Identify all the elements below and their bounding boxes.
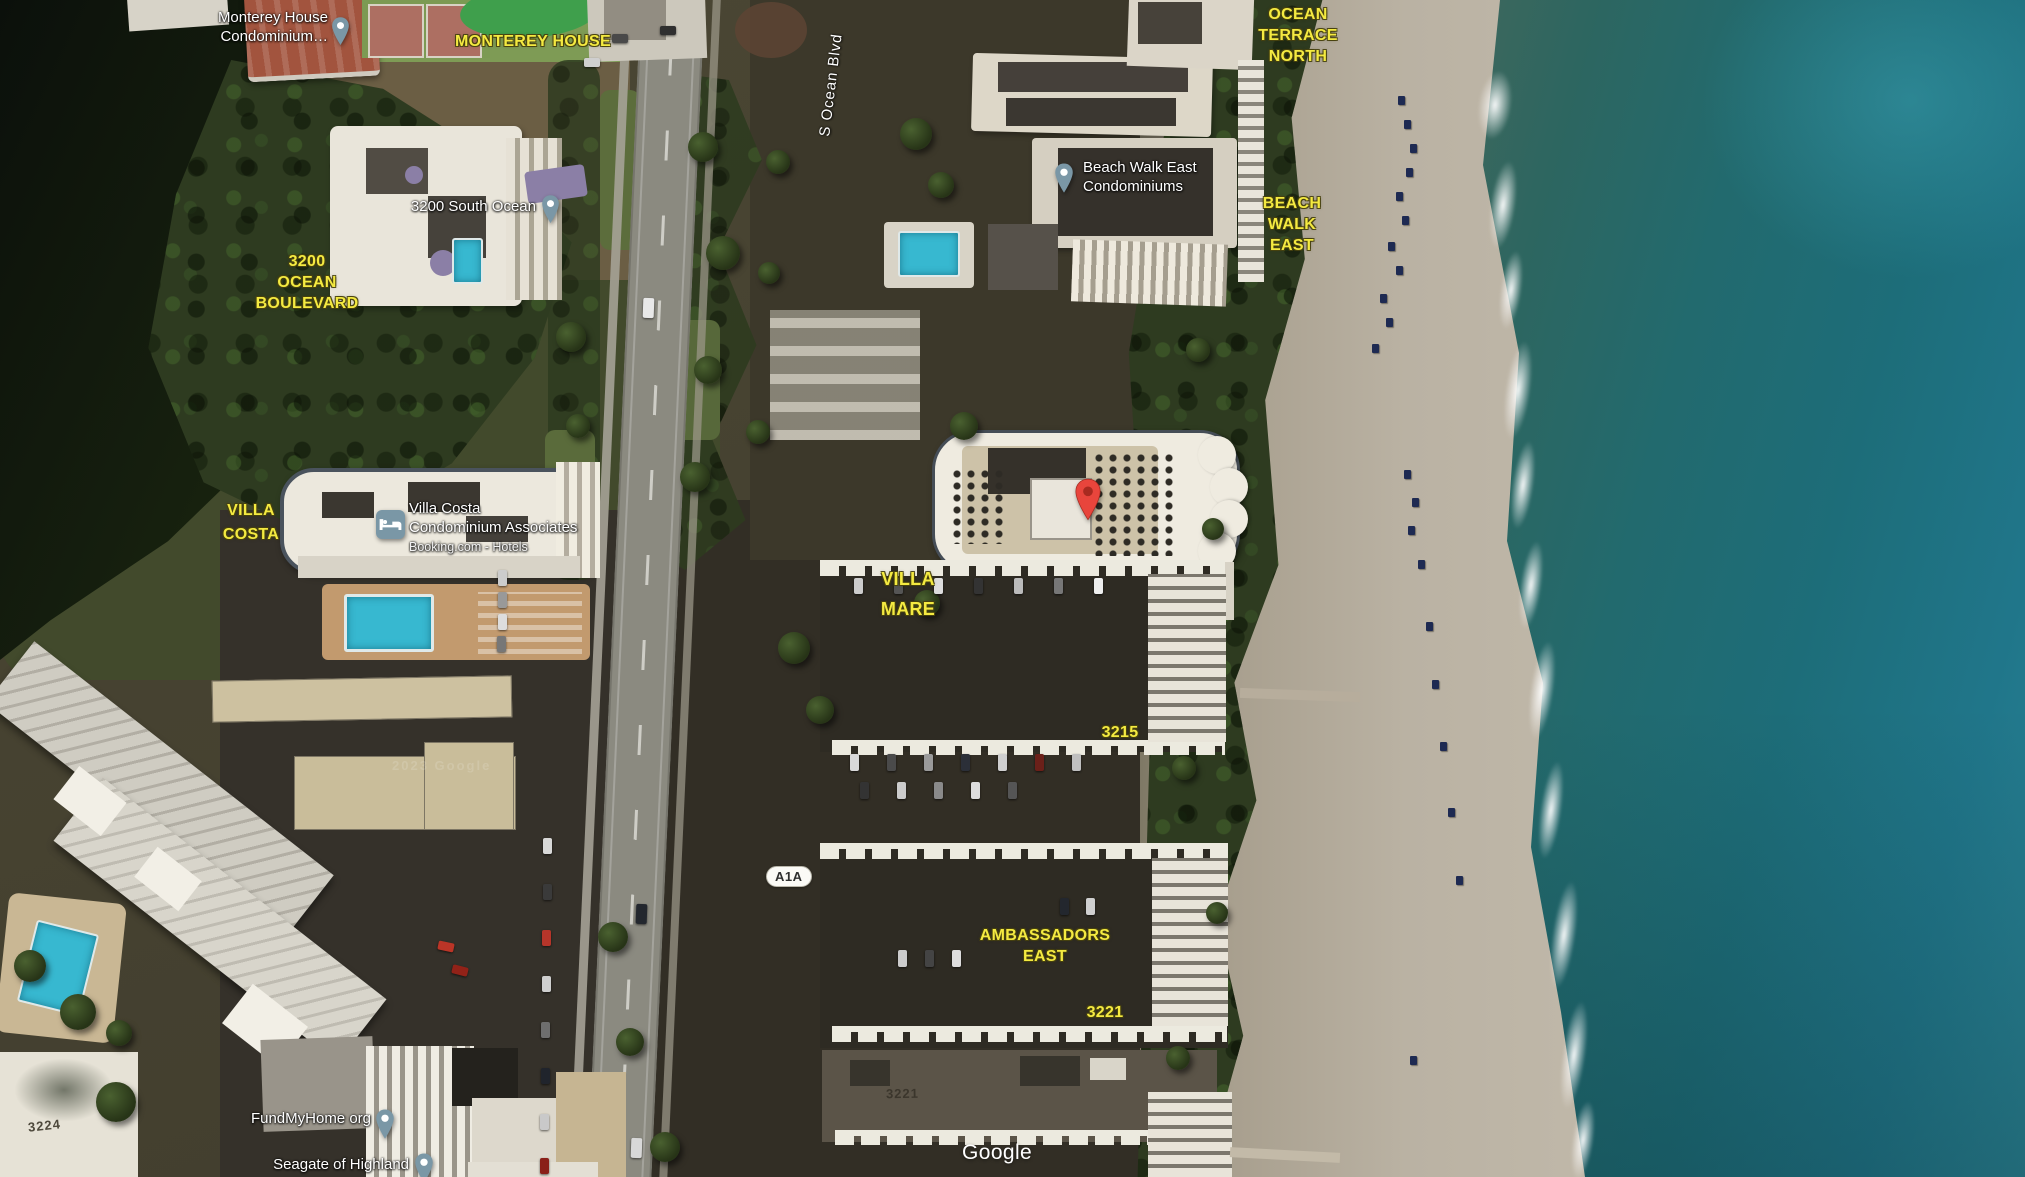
car	[971, 782, 980, 799]
car	[860, 782, 869, 799]
beach-umbrella	[1388, 242, 1395, 251]
poi-label-monterey-house-condominium[interactable]: Monterey House Condominium…	[218, 8, 328, 46]
area-label-villa-costa[interactable]: VILLA COSTA	[223, 499, 279, 547]
area-label-3200-ocean-boulevard[interactable]: 3200 OCEAN BOULEVARD	[256, 251, 359, 314]
surf-foam	[1498, 339, 1538, 442]
car	[924, 754, 933, 771]
tree	[778, 632, 810, 664]
surf-foam	[1544, 879, 1583, 991]
beach-umbrella	[1404, 120, 1411, 129]
car	[631, 1138, 643, 1158]
car	[1035, 754, 1044, 771]
poi-label-villa-costa-group[interactable]: Villa Costa Condominium Associates Booki…	[409, 499, 577, 555]
beach-umbrella	[1406, 168, 1413, 177]
surf-foam	[1495, 249, 1528, 331]
car	[1008, 782, 1017, 799]
surf-foam	[1514, 539, 1548, 631]
satellite-map-canvas[interactable]: 3221 3224 2023 Google S Ocean Blvd A1A M…	[0, 0, 2025, 1177]
beach-umbrella	[1410, 144, 1417, 153]
car	[541, 1022, 550, 1038]
area-label-villa-mare[interactable]: VILLA MARE	[881, 564, 935, 624]
surf-foam	[1554, 999, 1593, 1111]
tree	[688, 132, 718, 162]
poi-label-villa-costa[interactable]: Villa Costa Condominium Associates	[409, 499, 577, 537]
beach-umbrella	[1396, 266, 1403, 275]
surf-foam	[1567, 1099, 1600, 1177]
car	[541, 1068, 550, 1084]
area-label-3221[interactable]: 3221	[1087, 1002, 1124, 1023]
car	[543, 838, 552, 854]
tree	[598, 922, 628, 952]
car	[612, 34, 628, 43]
surf-foam	[1533, 759, 1569, 861]
poi-pin-3200-south-ocean-icon[interactable]	[541, 194, 560, 225]
tree	[1186, 338, 1210, 362]
tree	[650, 1132, 680, 1162]
area-label-ambassadors-east[interactable]: AMBASSADORS EAST	[980, 925, 1110, 967]
car	[451, 964, 469, 977]
tree	[96, 1082, 136, 1122]
beach-umbrella	[1372, 344, 1379, 353]
beach-umbrella	[1380, 294, 1387, 303]
car	[952, 950, 961, 967]
beach-umbrella	[1402, 216, 1409, 225]
beach-umbrella	[1448, 808, 1455, 817]
tree	[106, 1020, 132, 1046]
beach-umbrella	[1396, 192, 1403, 201]
tree	[616, 1028, 644, 1056]
surf-foam	[1523, 639, 1561, 741]
beach-umbrella	[1418, 560, 1425, 569]
car	[1014, 578, 1023, 594]
car	[542, 976, 551, 992]
tree	[556, 322, 586, 352]
surf-foam	[1473, 68, 1516, 142]
tree	[1202, 518, 1224, 540]
beach-umbrella	[1456, 876, 1463, 885]
tree	[746, 420, 770, 444]
car	[887, 754, 896, 771]
tree	[60, 994, 96, 1030]
route-shield-a1a: A1A	[766, 866, 812, 887]
car	[898, 950, 907, 967]
tree	[1172, 756, 1196, 780]
car	[961, 754, 970, 771]
poi-label-villa-costa-subtitle: Booking.com - Hotels	[409, 539, 577, 555]
car	[925, 950, 934, 967]
beach-umbrella	[1432, 680, 1439, 689]
surf-foam	[1484, 159, 1522, 252]
beach-umbrella	[1440, 742, 1447, 751]
tree	[694, 356, 722, 384]
tree	[680, 462, 710, 492]
imagery-watermark: 2023 Google	[392, 758, 491, 773]
beach-umbrella	[1386, 318, 1393, 327]
area-label-monterey-house[interactable]: MONTEREY HOUSE	[455, 31, 611, 52]
beach-umbrella	[1412, 498, 1419, 507]
car	[897, 782, 906, 799]
car	[1072, 754, 1081, 771]
car	[1094, 578, 1103, 594]
beach-umbrella	[1398, 96, 1405, 105]
area-label-ocean-terrace-north[interactable]: OCEAN TERRACE NORTH	[1258, 4, 1337, 67]
car	[543, 884, 552, 900]
car	[498, 592, 507, 608]
car	[542, 930, 551, 946]
scenery-layer	[0, 0, 2025, 1177]
car	[540, 1158, 549, 1174]
tree	[566, 414, 590, 438]
tree	[806, 696, 834, 724]
car	[643, 298, 655, 318]
poi-label-seagate-of-highland[interactable]: Seagate of Highland	[273, 1155, 409, 1174]
car	[998, 754, 1007, 771]
tree	[950, 412, 978, 440]
car	[934, 782, 943, 799]
google-watermark: Google	[962, 1141, 1032, 1165]
car	[498, 570, 507, 586]
tree	[706, 236, 740, 270]
poi-pin-fundmyhome-icon[interactable]	[375, 1108, 395, 1141]
poi-pin-beach-walk-icon[interactable]	[1054, 162, 1074, 195]
tree	[1166, 1046, 1190, 1070]
tree	[766, 150, 790, 174]
car	[660, 26, 676, 35]
car	[1054, 578, 1063, 594]
car	[437, 940, 455, 952]
poi-label-beach-walk-east-condominiums[interactable]: Beach Walk East Condominiums	[1083, 158, 1197, 196]
bed-icon	[376, 510, 405, 539]
car	[1086, 898, 1095, 915]
car	[974, 578, 983, 594]
tree	[14, 950, 46, 982]
tree	[1206, 902, 1228, 924]
car	[498, 614, 507, 630]
car	[497, 636, 506, 652]
beach-umbrella	[1404, 470, 1411, 479]
car	[1060, 898, 1069, 915]
beach-umbrella	[1408, 526, 1415, 535]
car	[636, 904, 648, 924]
car	[854, 578, 863, 594]
rooftop-number-3221: 3221	[886, 1086, 919, 1102]
surf-foam	[1506, 439, 1540, 531]
beach-umbrella	[1426, 622, 1433, 631]
car	[584, 58, 600, 67]
poi-label-fundmyhome[interactable]: FundMyHome org	[251, 1109, 371, 1128]
beach-umbrella	[1410, 1056, 1417, 1065]
tree	[928, 172, 954, 198]
destination-pin-icon[interactable]	[1073, 478, 1103, 522]
tree	[758, 262, 780, 284]
tree	[900, 118, 932, 150]
car	[934, 578, 943, 594]
poi-pin-monterey-icon[interactable]	[331, 16, 350, 47]
poi-label-3200-south-ocean[interactable]: 3200 South Ocean	[411, 197, 536, 216]
area-label-beach-walk-east[interactable]: BEACH WALK EAST	[1263, 193, 1321, 256]
car	[850, 754, 859, 771]
area-label-3215[interactable]: 3215	[1102, 722, 1139, 743]
poi-pin-seagate-icon[interactable]	[414, 1152, 434, 1177]
car	[540, 1114, 549, 1130]
lodging-icon-villa-costa[interactable]	[376, 510, 405, 539]
